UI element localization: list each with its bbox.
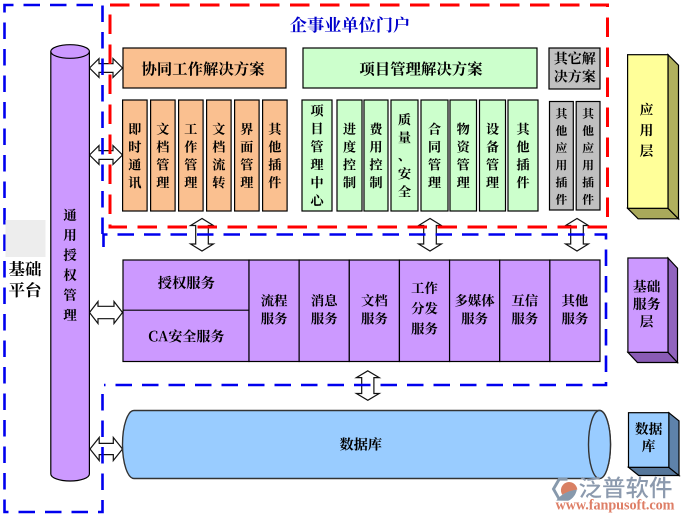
svg-text:www.fanpusoft.com: www.fanpusoft.com: [556, 498, 675, 514]
